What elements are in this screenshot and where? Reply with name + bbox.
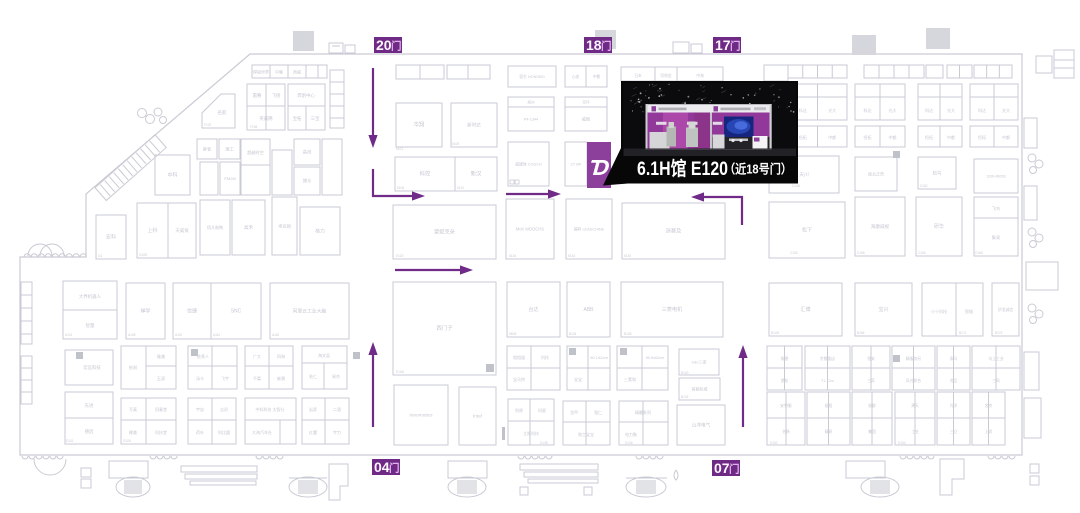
svg-text:麻省: 麻省: [203, 146, 211, 153]
svg-text:精研: 精研: [825, 429, 833, 434]
svg-text:工业: 工业: [911, 429, 919, 434]
svg-text:Innomotics: Innomotics: [409, 413, 433, 419]
svg-text:1106-4602B: 1106-4602B: [986, 175, 1006, 179]
svg-text:极太正奇: 极太正奇: [868, 171, 884, 177]
svg-text:PM2M: PM2M: [224, 176, 236, 181]
svg-text:名京: 名京: [985, 403, 993, 408]
svg-text:科达: 科达: [925, 107, 933, 113]
svg-text:精雕系列: 精雕系列: [635, 409, 651, 415]
svg-text:科技: 科技: [541, 354, 549, 360]
svg-text:04: 04: [374, 459, 390, 475]
svg-text:埃豆园: 埃豆园: [278, 223, 291, 230]
svg-text:B176: B176: [995, 331, 1003, 335]
svg-text:和工宝宝: 和工宝宝: [578, 431, 594, 437]
svg-text:C160: C160: [918, 251, 926, 255]
svg-text:三奇: 三奇: [867, 378, 875, 383]
svg-text:SNC: SNC: [231, 309, 242, 315]
svg-text:科达: 科达: [799, 107, 807, 113]
svg-text:龙甲: 龙甲: [570, 409, 578, 415]
svg-text:D146: D146: [625, 441, 633, 445]
svg-text:中集: 中集: [275, 69, 283, 75]
svg-text:18: 18: [586, 37, 602, 53]
svg-text:门: 门: [389, 462, 400, 475]
svg-text:B1G8: B1G8: [771, 331, 779, 335]
svg-text:恒安: 恒安: [867, 356, 875, 361]
svg-text:岩浆: 岩浆: [309, 406, 317, 412]
svg-text:四海: 四海: [277, 353, 285, 359]
svg-text:西门子: 西门子: [436, 324, 453, 332]
svg-text:6136: 6136: [509, 254, 516, 258]
svg-text:恒拓: 恒拓: [799, 134, 807, 140]
svg-text:广大: 广大: [253, 353, 261, 359]
svg-text:焊割中心: 焊割中心: [297, 92, 315, 99]
svg-text:相相道: 相相道: [513, 354, 525, 360]
svg-text:京环: 京环: [582, 100, 590, 105]
svg-text:E1A8: E1A8: [396, 370, 404, 374]
svg-text:D101: D101: [66, 439, 74, 443]
svg-text:恒拓: 恒拓: [864, 134, 872, 140]
svg-text:6101: 6101: [396, 147, 403, 151]
svg-text:高创: 高创: [303, 149, 312, 156]
svg-text:条马: 条马: [950, 356, 958, 361]
svg-text:科技堂: 科技堂: [155, 429, 167, 435]
svg-text:椰美: 椰美: [129, 429, 137, 435]
svg-text:日本: 日本: [634, 73, 642, 78]
svg-text:门: 门: [601, 40, 612, 53]
svg-text:英威腾: 英威腾: [259, 115, 273, 122]
svg-text:6B36: 6B36: [509, 332, 517, 336]
svg-text:门: 门: [729, 463, 740, 476]
svg-text:科达: 科达: [864, 107, 872, 113]
svg-text:A108: A108: [128, 333, 136, 337]
svg-text:E120: E120: [396, 254, 404, 258]
svg-text:G1: G1: [98, 254, 102, 258]
svg-text:西威: 西威: [293, 69, 301, 75]
svg-text:B134: B134: [569, 332, 577, 336]
svg-text:依耐: 依耐: [129, 364, 138, 371]
svg-text:大界机器人: 大界机器人: [79, 293, 102, 300]
svg-text:中都: 中都: [828, 134, 836, 140]
svg-text:6134: 6134: [568, 254, 575, 258]
svg-text:松下: 松下: [802, 227, 812, 234]
svg-text:海康威视: 海康威视: [871, 223, 890, 230]
svg-text:光大: 光大: [889, 107, 897, 113]
svg-text:高禾: 高禾: [244, 224, 254, 231]
svg-text:名品: 名品: [950, 378, 958, 383]
svg-text:中都: 中都: [947, 134, 955, 140]
svg-text:天川: 天川: [799, 172, 809, 178]
svg-text:乌上工业: 乌上工业: [988, 356, 1003, 361]
svg-text:科比盟: 科比盟: [218, 429, 230, 435]
svg-text:浙赛及: 浙赛及: [666, 227, 682, 235]
svg-text:智链: 智链: [965, 308, 973, 314]
svg-text:山洋电气: 山洋电气: [692, 422, 711, 429]
svg-text:禅学: 禅学: [140, 308, 150, 315]
svg-text:博众: 博众: [303, 178, 312, 185]
svg-text:6108: 6108: [397, 186, 404, 190]
svg-text:汇博: 汇博: [800, 306, 810, 313]
svg-text:中科科技 太智社: 中科科技 太智社: [255, 406, 284, 412]
svg-text:依莱人: 依莱人: [197, 353, 209, 359]
svg-text:悟凡制陶: 悟凡制陶: [207, 224, 223, 230]
svg-text:写真: 写真: [129, 406, 137, 412]
svg-text:（近18号门）: （近18号门）: [724, 162, 792, 177]
svg-text:汤卡: 汤卡: [196, 375, 204, 381]
svg-text:宇宙: 宇宙: [196, 406, 204, 412]
svg-text:超媒体 COUCH: 超媒体 COUCH: [515, 162, 542, 167]
svg-text:宇力: 宇力: [333, 429, 341, 435]
svg-text:宝拓: 宝拓: [293, 115, 302, 122]
svg-text:三风: 三风: [992, 379, 1000, 383]
svg-text:ABB: ABB: [583, 307, 594, 313]
svg-text:B140: B140: [681, 371, 689, 375]
svg-text:B128: B128: [624, 332, 632, 336]
svg-text:A110: A110: [175, 333, 182, 337]
svg-text:上尚: 上尚: [985, 429, 993, 434]
svg-text:新汉: 新汉: [471, 170, 482, 178]
svg-text:GE/三诺: GE/三诺: [692, 359, 707, 365]
svg-text:中海: 中海: [696, 73, 704, 78]
svg-text:C168: C168: [975, 251, 983, 255]
svg-text:ZY Mfr: ZY Mfr: [571, 163, 583, 167]
svg-text:回春堂: 回春堂: [155, 406, 167, 412]
svg-text:新时达: 新时达: [467, 122, 481, 129]
svg-text:阿里云工业大脑: 阿里云工业大脑: [293, 308, 327, 315]
svg-text:6130: 6130: [624, 254, 631, 258]
svg-text:集团: 集团: [868, 429, 876, 434]
svg-text:光大: 光大: [1002, 107, 1010, 113]
svg-text:昆仑 HONGBO: 昆仑 HONGBO: [519, 74, 545, 79]
svg-text:McK MOOCHS: McK MOOCHS: [516, 227, 545, 232]
svg-text:蒙妮克朵: 蒙妮克朵: [434, 228, 455, 236]
svg-text:中都: 中都: [1002, 134, 1010, 140]
svg-text:宝宝: 宝宝: [574, 376, 582, 382]
svg-text:C150: C150: [790, 251, 798, 255]
svg-text:C148: C148: [792, 184, 800, 188]
svg-text:F102: F102: [204, 123, 211, 127]
svg-text:90.5x62cm: 90.5x62cm: [646, 356, 665, 360]
svg-text:宏远科技: 宏远科技: [83, 364, 101, 371]
svg-text:6105: 6105: [452, 142, 459, 146]
svg-text:C156: C156: [857, 251, 865, 255]
svg-text:心态: 心态: [572, 74, 580, 79]
svg-text:71.12m: 71.12m: [821, 379, 834, 383]
svg-text:F108: F108: [250, 125, 257, 129]
svg-text:红魔: 红魔: [309, 429, 317, 435]
svg-text:二酒: 二酒: [333, 406, 341, 412]
svg-text:宝兴: 宝兴: [878, 306, 888, 313]
svg-text:强仁: 强仁: [594, 409, 602, 415]
svg-text:6.1H馆 E120: 6.1H馆 E120: [637, 157, 728, 180]
svg-text:中都: 中都: [593, 74, 601, 79]
svg-text:B172: B172: [959, 331, 967, 335]
svg-text:G108: G108: [139, 253, 147, 257]
svg-text:被潮: 被潮: [277, 375, 285, 381]
svg-text:科控: 科控: [420, 170, 431, 178]
svg-text:科星: 科星: [538, 407, 546, 413]
svg-text:毛仁: 毛仁: [309, 373, 317, 379]
svg-text:利原: 利原: [515, 407, 523, 413]
svg-text:威图: 威图: [582, 116, 590, 123]
svg-text:6110: 6110: [457, 186, 464, 190]
svg-text:恒拓: 恒拓: [978, 134, 986, 140]
svg-text:中都: 中都: [889, 134, 897, 140]
svg-text:安特服: 安特服: [780, 403, 792, 408]
svg-text:大海汽车社: 大海汽车社: [252, 429, 272, 435]
svg-text:纽班: 纽班: [825, 403, 833, 408]
svg-text:D138: D138: [540, 441, 548, 445]
svg-text:光大: 光大: [947, 107, 955, 113]
svg-text:三菱电机: 三菱电机: [662, 305, 684, 313]
svg-text:D108: D108: [123, 439, 131, 443]
svg-text:风光联合: 风光联合: [906, 378, 921, 383]
svg-text:电力聚: 电力聚: [625, 431, 637, 437]
svg-text:光大: 光大: [828, 107, 836, 113]
svg-text:研华: 研华: [934, 223, 944, 230]
svg-text:超越时空: 超越时空: [247, 149, 264, 156]
svg-text:A116: A116: [272, 333, 279, 337]
svg-text:振群: 振群: [868, 403, 876, 408]
svg-text:望松: 望松: [781, 378, 789, 383]
svg-text:20: 20: [376, 37, 392, 53]
svg-text:松鸟: 松鸟: [933, 170, 942, 177]
svg-text:飞宇: 飞宇: [221, 375, 229, 381]
svg-text:07: 07: [714, 460, 730, 476]
svg-text:玉泉: 玉泉: [157, 375, 166, 381]
svg-text:P4-1344: P4-1344: [524, 118, 538, 122]
svg-text:中科: 中科: [167, 172, 177, 179]
svg-text:宏科: 宏科: [106, 234, 116, 241]
svg-text:黑天: 黑天: [911, 404, 919, 408]
svg-text:三素和: 三素和: [624, 376, 636, 382]
svg-text:60.142cm: 60.142cm: [590, 355, 608, 360]
svg-text:理工: 理工: [225, 147, 233, 152]
svg-text:光洋: 光洋: [950, 403, 958, 408]
svg-text:京都饭店: 京都饭店: [820, 356, 835, 361]
svg-text:Intel: Intel: [473, 414, 482, 420]
svg-text:宝马特: 宝马特: [513, 376, 525, 382]
svg-text:B166: B166: [857, 331, 865, 335]
svg-text:A101: A101: [65, 333, 73, 337]
svg-text:振德: 振德: [781, 356, 789, 361]
svg-text:焊接世界: 焊接世界: [253, 69, 269, 75]
svg-text:17: 17: [715, 37, 731, 53]
svg-text:台达: 台达: [528, 306, 538, 313]
svg-text:名扬: 名扬: [782, 429, 790, 434]
svg-text:易杰: 易杰: [332, 373, 340, 379]
svg-text:三立: 三立: [950, 429, 958, 434]
svg-text:D160: D160: [898, 441, 906, 445]
svg-text:天威保: 天威保: [175, 227, 189, 234]
svg-text:雷赛: 雷赛: [253, 92, 262, 99]
svg-text:荷叶: 荷叶: [196, 429, 204, 435]
svg-text:智量: 智量: [86, 322, 95, 329]
svg-text:雅美: 雅美: [157, 353, 165, 360]
svg-text:千篇: 千篇: [253, 375, 261, 381]
svg-text:名航: 名航: [217, 109, 227, 116]
svg-text:门: 门: [730, 40, 741, 53]
svg-text:A112: A112: [213, 333, 220, 337]
svg-text:飞鸟: 飞鸟: [992, 205, 1000, 212]
svg-text:飞扬: 飞扬: [272, 92, 281, 99]
svg-text:格力: 格力: [315, 228, 325, 235]
svg-text:科达: 科达: [978, 107, 986, 113]
svg-text:信捷: 信捷: [187, 308, 197, 315]
svg-text:郑州: 郑州: [527, 100, 535, 105]
svg-text:切地金: 切地金: [660, 73, 672, 78]
svg-text:三宝: 三宝: [311, 115, 320, 121]
svg-text:海文县: 海文县: [318, 352, 330, 358]
svg-text:B142: B142: [681, 395, 689, 399]
svg-text:C162: C162: [920, 184, 928, 188]
svg-text:小十科技: 小十科技: [931, 308, 947, 314]
svg-text:华翔: 华翔: [414, 121, 425, 129]
svg-text:精服务另: 精服务另: [906, 356, 921, 361]
svg-text:门: 门: [391, 40, 402, 53]
svg-text:D152: D152: [770, 441, 778, 445]
svg-text:福科 LEADCHINE: 福科 LEADCHINE: [574, 227, 605, 232]
svg-text:上科: 上科: [147, 227, 157, 234]
svg-text:伊龙诚信: 伊龙诚信: [998, 307, 1013, 312]
svg-text:恒拓: 恒拓: [925, 134, 933, 140]
svg-text:先进: 先进: [85, 402, 94, 409]
svg-text:首都机械: 首都机械: [692, 386, 708, 392]
svg-text:立隆科技: 立隆科技: [523, 430, 539, 436]
svg-text:吉初: 吉初: [220, 406, 228, 412]
svg-text:集易: 集易: [992, 234, 1000, 241]
svg-text:德因: 德因: [85, 428, 94, 435]
